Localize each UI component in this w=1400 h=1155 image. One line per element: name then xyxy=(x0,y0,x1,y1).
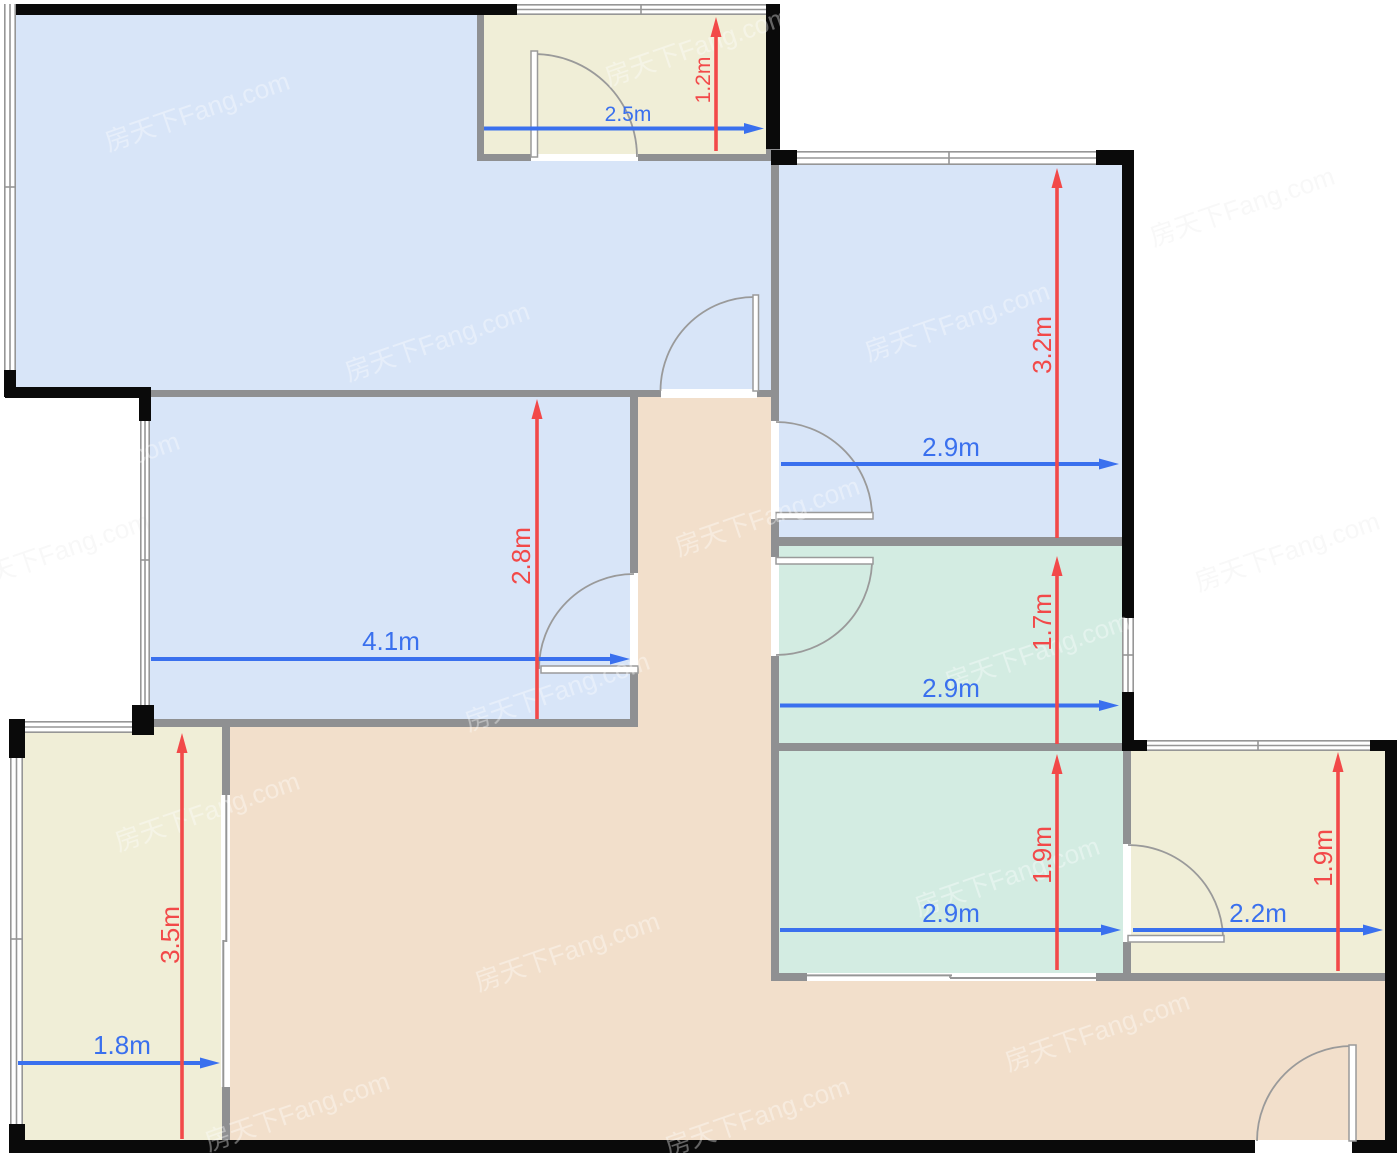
svg-text:2.5m: 2.5m xyxy=(605,103,652,126)
svg-text:3.2m: 3.2m xyxy=(1027,316,1057,374)
svg-text:1.2m: 1.2m xyxy=(692,57,715,104)
svg-text:2.9m: 2.9m xyxy=(922,898,980,928)
svg-text:1.7m: 1.7m xyxy=(1027,593,1057,651)
svg-text:2.2m: 2.2m xyxy=(1229,898,1287,928)
svg-text:1.8m: 1.8m xyxy=(93,1030,151,1060)
svg-text:4.1m: 4.1m xyxy=(362,626,420,656)
svg-text:2.9m: 2.9m xyxy=(922,432,980,462)
svg-text:2.8m: 2.8m xyxy=(506,527,536,585)
svg-text:房天下Fang.com: 房天下Fang.com xyxy=(1146,161,1339,252)
svg-text:房天下Fang.com: 房天下Fang.com xyxy=(0,506,153,597)
svg-text:1.9m: 1.9m xyxy=(1308,829,1338,887)
svg-text:3.5m: 3.5m xyxy=(155,906,185,964)
svg-text:房天下Fang.com: 房天下Fang.com xyxy=(1191,506,1384,597)
svg-text:2.9m: 2.9m xyxy=(922,673,980,703)
svg-text:1.9m: 1.9m xyxy=(1027,826,1057,884)
